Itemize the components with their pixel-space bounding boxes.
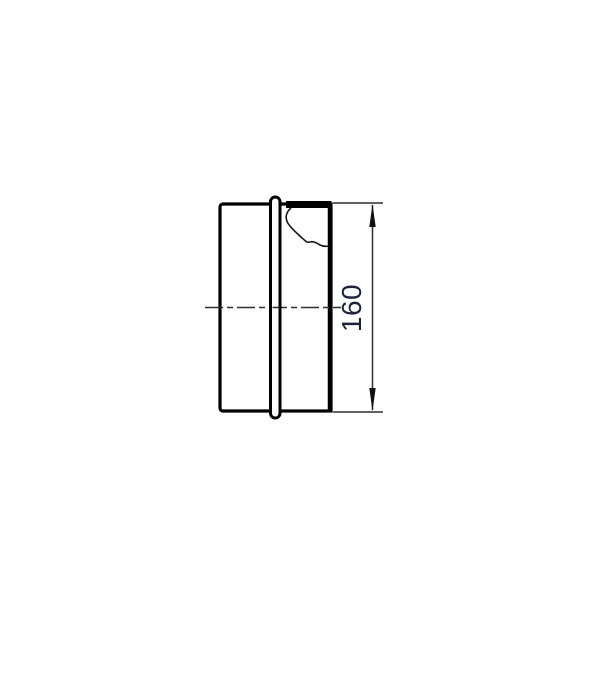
dimension-annotation: 160 [333,203,383,412]
page-background: 160 [0,0,600,685]
dimension-label: 160 [336,284,367,332]
arrowhead-down-icon [369,388,375,411]
technical-drawing: 160 [0,0,600,685]
arrowhead-up-icon [369,204,375,227]
